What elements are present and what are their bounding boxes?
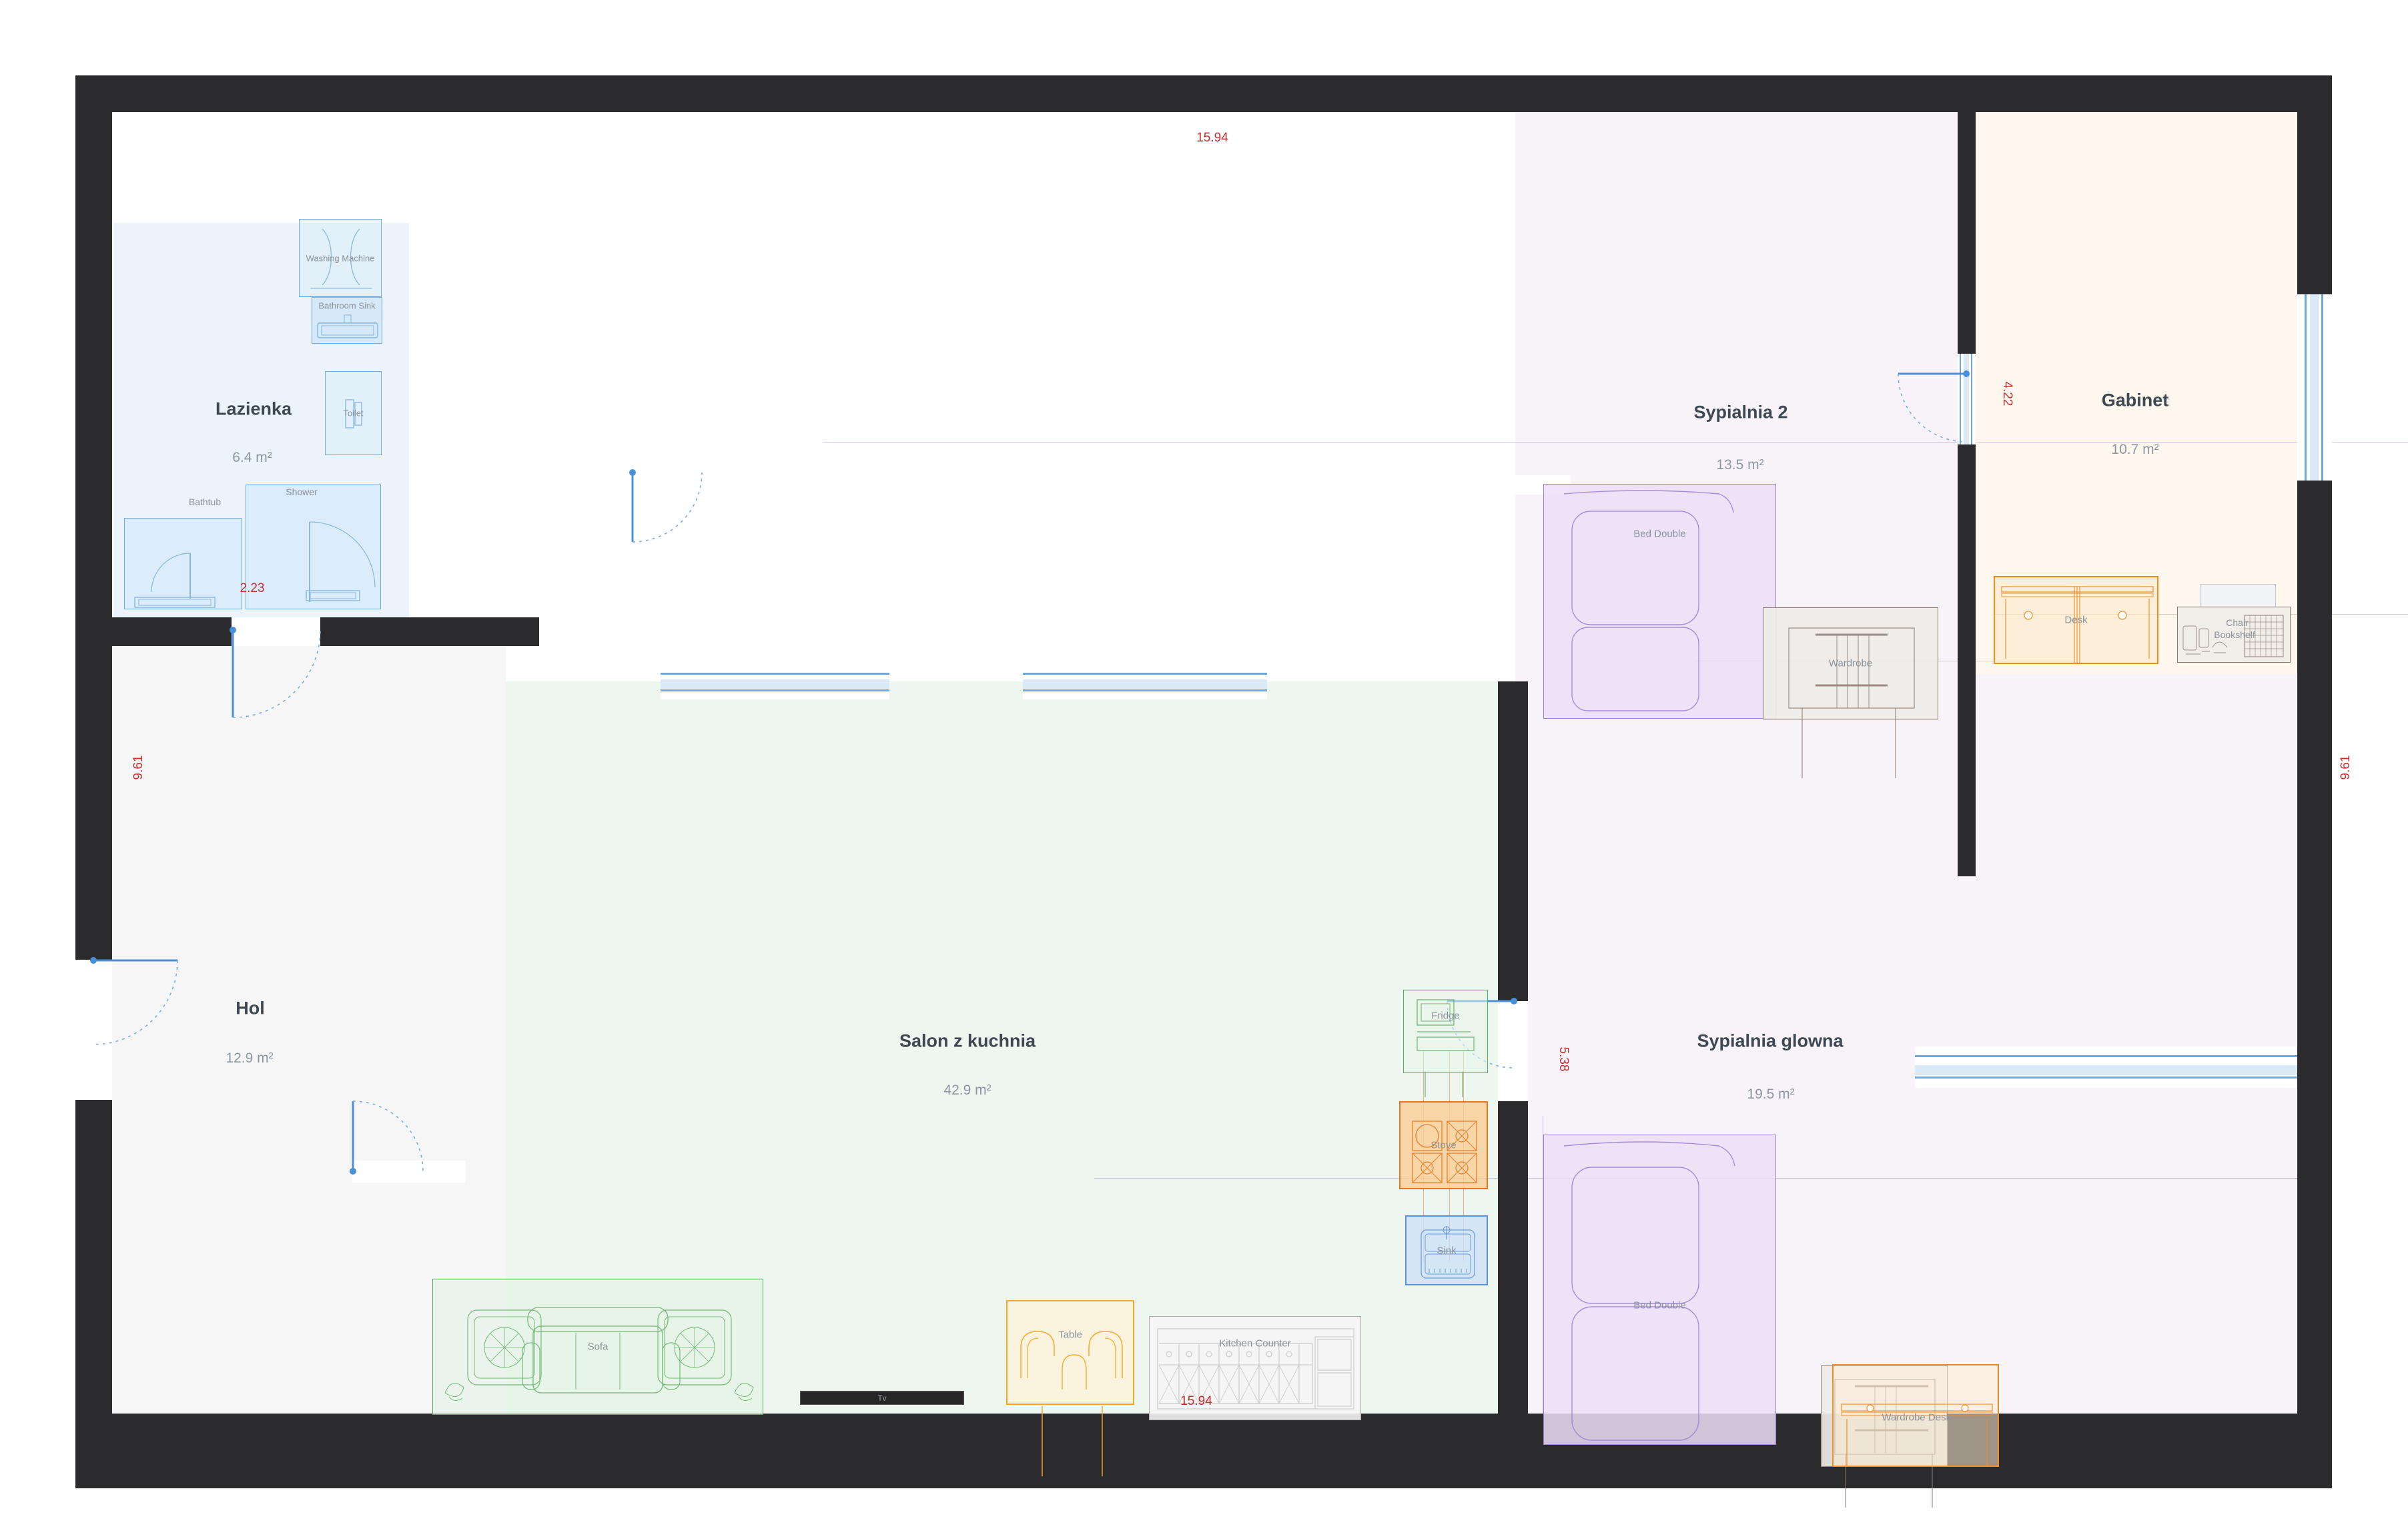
wall-gabinet-top[interactable] [1958, 112, 1976, 354]
furniture-tv[interactable]: Tv [800, 1391, 964, 1405]
wall-right-lower[interactable] [2297, 481, 2332, 1488]
wall-right-upper[interactable] [2297, 75, 2332, 294]
door-hinge [1511, 998, 1517, 1004]
tv-label: Tv [877, 1394, 886, 1403]
wall-left-upper[interactable] [75, 75, 112, 960]
furniture-sofa[interactable]: Sofa [432, 1279, 763, 1415]
hol-title: Hol [236, 998, 265, 1019]
wall-kitchen-top[interactable] [1498, 681, 1528, 1001]
desk-main-label: Desk [1928, 1412, 1951, 1424]
bathtub-label: Bathtub [189, 497, 221, 507]
furniture-bathtub[interactable] [124, 518, 242, 609]
furniture-table[interactable]: Table [1006, 1300, 1134, 1405]
room-sypialnia-glowna-strip [1958, 876, 1976, 1414]
gabinet-area: 10.7 m² [2111, 442, 2158, 458]
furniture-stove[interactable]: Stove [1399, 1101, 1488, 1189]
door-sypialnia2-gabinet[interactable] [1888, 364, 1975, 450]
furniture-wardrobe-2[interactable]: Wardrobe [1763, 607, 1938, 719]
gabinet-title: Gabinet [2102, 390, 2169, 411]
shower-label: Shower [286, 487, 317, 497]
salon-area: 42.9 m² [943, 1083, 991, 1099]
floor-plan: Washing Machine Bathroom Sink Toilet [0, 0, 2408, 1525]
dimension-top-width: 15.94 [1196, 131, 1228, 145]
sypialnia2-title: Sypialnia 2 [1693, 402, 1787, 423]
wardrobe-main-label: Wardrobe [1882, 1412, 1925, 1424]
wall-bathroom-left[interactable] [112, 617, 232, 646]
wall-gabinet-mid[interactable] [1958, 444, 1976, 876]
wall-bathroom-right[interactable] [320, 617, 539, 646]
lazienka-title: Lazienka [216, 399, 292, 420]
furniture-bed-double-main[interactable]: Bed Double [1543, 1135, 1776, 1445]
door-hol-salon[interactable] [344, 1095, 437, 1181]
dimension-left-height: 9.61 [131, 755, 146, 780]
furniture-desk-gabinet[interactable]: Desk [1994, 576, 2158, 664]
sypialnia-glowna-title: Sypialnia glowna [1697, 1031, 1843, 1052]
lazienka-area: 6.4 m² [232, 450, 272, 466]
door-hinge [230, 627, 236, 633]
sypialnia-glowna-area: 19.5 m² [1747, 1087, 1794, 1103]
guide-line-horizontal-upper [823, 442, 2408, 442]
furniture-bathroom-sink[interactable]: Bathroom Sink [312, 297, 382, 344]
dimension-right-height: 9.61 [2339, 755, 2353, 780]
door-sypialnia2[interactable] [624, 464, 717, 554]
hol-area: 12.9 m² [226, 1050, 273, 1066]
door-hinge [629, 469, 636, 476]
dimension-gabinet-width: 4.22 [2000, 382, 2014, 406]
dimension-kitchen-height: 5.38 [1556, 1047, 1571, 1072]
furniture-sink[interactable]: Sink [1405, 1215, 1488, 1285]
door-lazienka[interactable] [220, 621, 334, 727]
sypialnia2-area: 13.5 m² [1716, 457, 1763, 473]
dimension-bathroom-width: 2.23 [240, 581, 265, 596]
furniture-toilet[interactable]: Toilet [325, 371, 382, 455]
window-salon-2[interactable] [1023, 671, 1267, 699]
furniture-shower[interactable] [246, 485, 381, 609]
wall-kitchen-bottom[interactable] [1498, 1101, 1528, 1414]
furniture-washing-machine[interactable]: Washing Machine [299, 219, 382, 297]
window-gabinet-right[interactable] [2297, 294, 2332, 481]
door-hinge [1963, 370, 1970, 377]
room-sypialnia-glowna[interactable] [1976, 674, 2297, 1414]
salon-title: Salon z kuchnia [899, 1031, 1036, 1052]
dimension-bottom-width: 15.94 [1180, 1394, 1212, 1409]
window-salon-1[interactable] [661, 671, 889, 699]
furniture-fridge[interactable]: Fridge [1403, 990, 1488, 1073]
window-sypialnia-glowna[interactable] [1915, 1046, 2297, 1088]
door-entrance[interactable] [67, 951, 214, 1078]
door-hinge [350, 1168, 356, 1175]
door-hinge [90, 957, 97, 964]
bookshelf-label: Bookshelf [2214, 629, 2255, 640]
furniture-bed-double-2[interactable]: Bed Double [1543, 484, 1776, 719]
chair-label: Chair [2226, 617, 2248, 628]
chair-backdrop [2200, 584, 2276, 609]
wall-top[interactable] [75, 75, 2332, 112]
